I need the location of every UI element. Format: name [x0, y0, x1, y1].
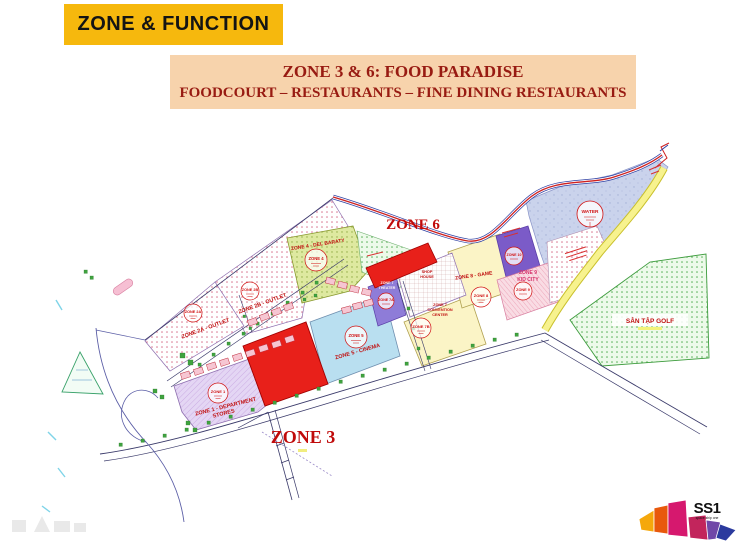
logo-panel-blue: [716, 524, 736, 541]
zone9-label-line2: KID CITY: [517, 277, 539, 283]
zone7-theater-label-line1: ZONE 7: [381, 281, 394, 285]
stamp-zone10-text: ZONE 10: [507, 253, 522, 257]
stamp-zone4-text: ZONE 4: [308, 256, 324, 261]
zone6-label: ZONE 6: [386, 217, 440, 233]
slide: ZONE & FUNCTION ZONE 3 & 6: FOOD PARADIS…: [0, 0, 750, 550]
watermark-icons: [12, 516, 86, 532]
zone7-theater-label-line2: THEATER: [379, 286, 396, 290]
stamp-zone5-text: ZONE 5: [348, 333, 364, 338]
logo-panel-yellow: [639, 510, 654, 532]
stamp-zone7a-text: ZONE 7A: [378, 298, 394, 302]
stamp-zone1: ZONE 1: [208, 383, 228, 403]
stamp-zone9-text: ZONE 9: [516, 288, 530, 292]
triangle-parcel: [62, 352, 103, 394]
zone9-label-line1: ZONE 9: [519, 270, 537, 276]
parcel-golf: [570, 254, 709, 366]
pink-capsule: [112, 277, 135, 296]
stamp-water: WATER: [577, 201, 603, 227]
stamp-zone1-text: ZONE 1: [211, 389, 226, 394]
stamp-zone2a-text: ZONE 2A: [185, 310, 202, 314]
logo-panel-magenta: [668, 500, 688, 537]
zone7-convention-label-line2: CONVENTION: [427, 308, 453, 312]
stamp-zone2b: ZONE 2B: [241, 282, 259, 300]
ssi-logo: SS1 space ship one: [639, 500, 736, 541]
zone7-convention-label-line1: ZONE 7: [433, 303, 447, 307]
zone3-label: ZONE 3: [271, 427, 336, 447]
stamp-zone2a: ZONE 2A: [184, 304, 202, 322]
stamp-zone8: ZONE 8: [471, 287, 491, 307]
shophouse-label-line2: HOUSE: [420, 275, 434, 279]
stamp-water-text: WATER: [582, 209, 600, 215]
left-decor: [42, 277, 134, 512]
yellow-mark: [298, 449, 307, 452]
stamp-zone7a: ZONE 7A: [378, 293, 394, 309]
stamp-zone5: ZONE 5: [345, 326, 367, 348]
stamp-zone10: ZONE 10: [505, 247, 523, 265]
stamp-zone8-text: ZONE 8: [474, 293, 489, 298]
stamp-zone4: ZONE 4: [305, 249, 327, 271]
stamp-zone9: ZONE 9: [514, 282, 532, 300]
zone7-convention-label-line3: CENTER: [432, 313, 448, 317]
stamp-zone2b-text: ZONE 2B: [242, 288, 259, 292]
stamp-zone7b-text: ZONE 7B: [412, 324, 429, 329]
logo-panel-orange: [654, 505, 668, 534]
golf-label-underline: [638, 327, 662, 330]
stamp-zone7b: ZONE 7B: [411, 318, 431, 338]
logo-tagline: space ship one: [696, 516, 719, 520]
shophouse-label-line1: SHOP: [422, 270, 433, 274]
site-plan-map: ZONE 2A ZONE 2B ZONE 1 ZONE 4 ZONE 5: [0, 0, 750, 550]
golf-label: SÂN TẬP GOLF: [626, 316, 674, 325]
logo-text: SS1: [694, 500, 721, 517]
cyan-marks: [42, 300, 65, 512]
